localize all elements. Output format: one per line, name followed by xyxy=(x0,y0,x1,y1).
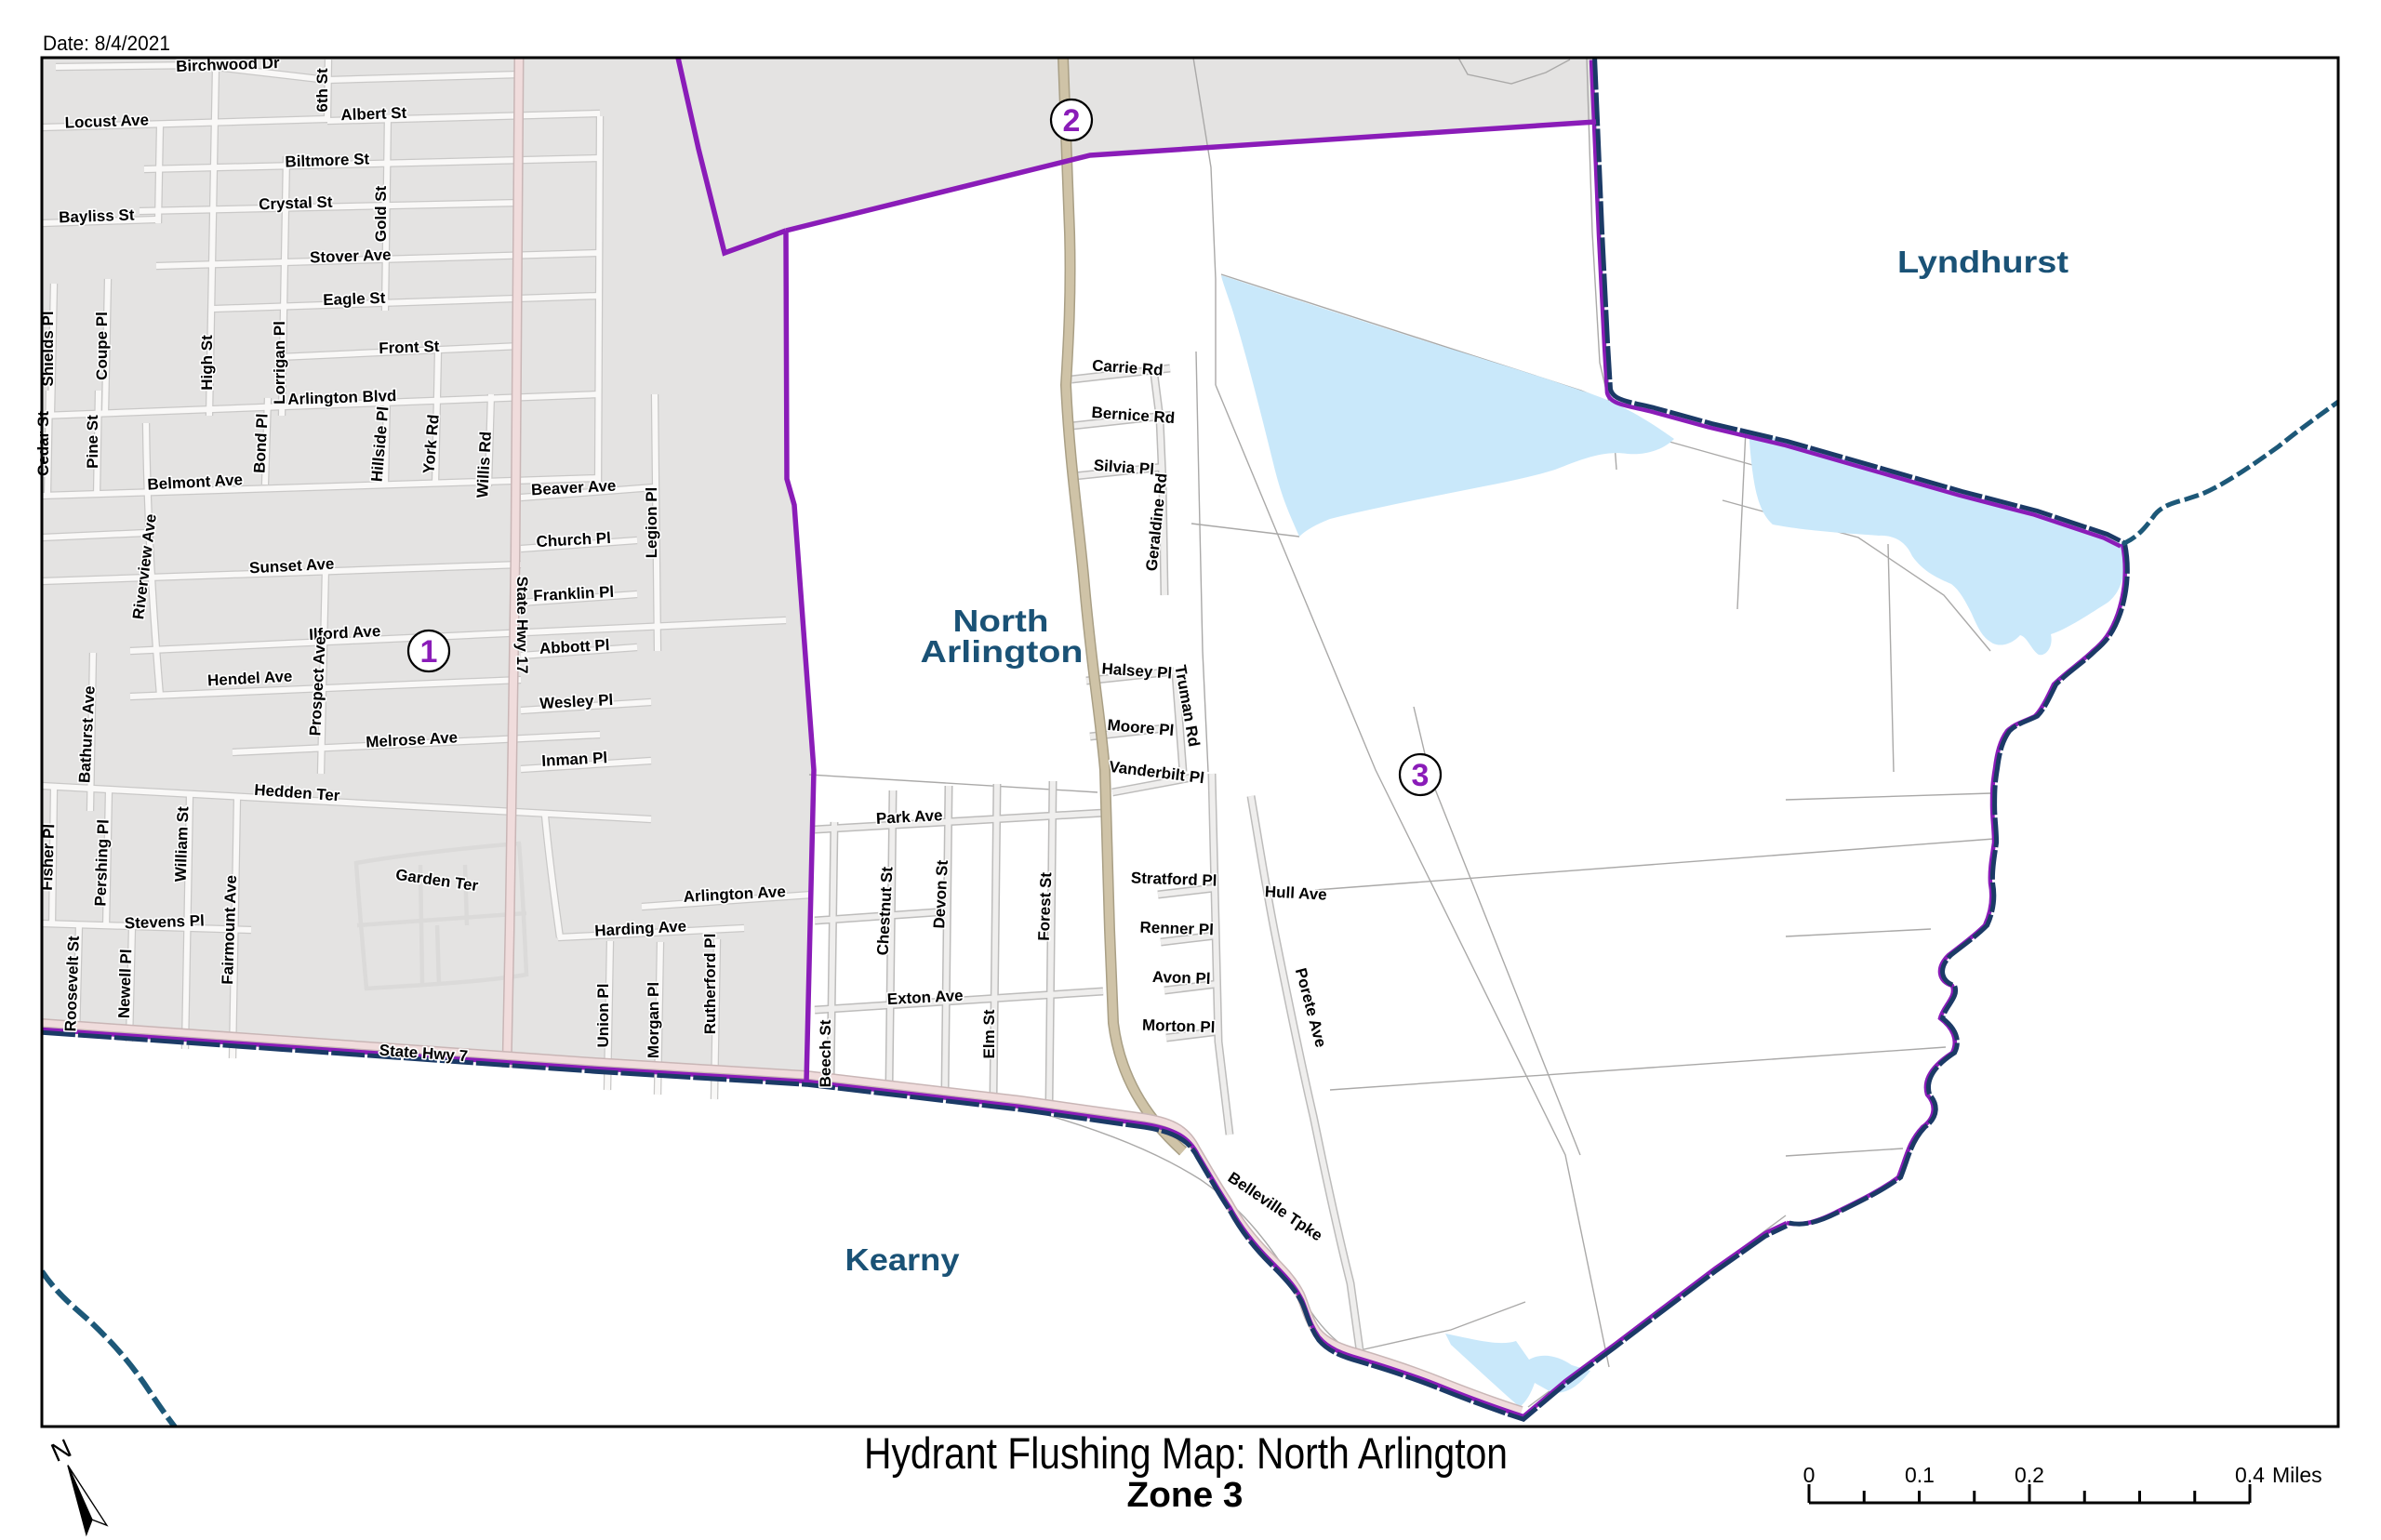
svg-text:Union Pl: Union Pl xyxy=(594,984,612,1048)
svg-text:State Hwy 17: State Hwy 17 xyxy=(513,577,531,674)
svg-text:Pine St: Pine St xyxy=(84,415,101,469)
svg-text:2: 2 xyxy=(1063,103,1081,139)
svg-text:Abbott Pl: Abbott Pl xyxy=(539,636,609,657)
svg-text:0: 0 xyxy=(1803,1463,1816,1487)
svg-text:Gold St: Gold St xyxy=(372,185,390,242)
svg-text:Legion Pl: Legion Pl xyxy=(643,487,660,559)
svg-text:Stover Ave: Stover Ave xyxy=(310,246,392,266)
svg-text:Lyndhurst: Lyndhurst xyxy=(1897,245,2068,279)
svg-text:Arlington: Arlington xyxy=(921,634,1084,669)
svg-text:0.1: 0.1 xyxy=(1905,1463,1935,1487)
svg-text:Hull Ave: Hull Ave xyxy=(1264,883,1327,903)
svg-text:Rutherford Pl: Rutherford Pl xyxy=(701,934,719,1035)
svg-text:Willis Rd: Willis Rd xyxy=(473,431,495,498)
svg-text:North: North xyxy=(953,604,1049,638)
svg-text:3: 3 xyxy=(1412,758,1430,793)
svg-text:Albert St: Albert St xyxy=(340,104,407,124)
svg-text:Front St: Front St xyxy=(379,338,440,357)
svg-text:Locust Ave: Locust Ave xyxy=(64,111,149,131)
svg-text:Stratford Pl: Stratford Pl xyxy=(1131,869,1217,889)
svg-text:Stevens Pl: Stevens Pl xyxy=(125,912,206,933)
svg-text:Devon St: Devon St xyxy=(930,859,951,929)
svg-text:Bayliss St: Bayliss St xyxy=(59,206,135,227)
svg-text:Crystal St: Crystal St xyxy=(259,193,333,214)
svg-text:Hydrant Flushing Map: North Ar: Hydrant Flushing Map: North Arlington xyxy=(864,1428,1508,1478)
svg-text:Zone 3: Zone 3 xyxy=(1127,1476,1244,1515)
svg-text:Inman Pl: Inman Pl xyxy=(541,749,608,770)
svg-text:Forest St: Forest St xyxy=(1035,871,1056,941)
svg-text:Kearny: Kearny xyxy=(845,1242,961,1277)
svg-text:Miles: Miles xyxy=(2272,1463,2322,1487)
svg-text:Renner Pl: Renner Pl xyxy=(1139,919,1214,939)
svg-text:Morgan Pl: Morgan Pl xyxy=(645,982,662,1058)
svg-text:Date: 8/4/2021: Date: 8/4/2021 xyxy=(43,32,170,55)
svg-text:Eagle St: Eagle St xyxy=(323,289,386,309)
svg-text:Roosevelt St: Roosevelt St xyxy=(61,936,83,1032)
svg-text:6th St: 6th St xyxy=(313,68,331,113)
svg-text:Park Ave: Park Ave xyxy=(876,806,943,828)
svg-text:Biltmore St: Biltmore St xyxy=(285,150,370,170)
svg-text:Elm St: Elm St xyxy=(980,1009,998,1058)
svg-text:Morton Pl: Morton Pl xyxy=(1142,1016,1216,1037)
svg-text:Avon Pl: Avon Pl xyxy=(1152,968,1211,988)
svg-text:Bond Pl: Bond Pl xyxy=(250,413,271,473)
svg-text:1: 1 xyxy=(420,634,438,670)
svg-text:0.2: 0.2 xyxy=(2015,1463,2044,1487)
svg-text:Coupe Pl: Coupe Pl xyxy=(93,312,111,380)
svg-text:Lorrigan Pl: Lorrigan Pl xyxy=(271,321,288,405)
svg-text:Pershing Pl: Pershing Pl xyxy=(91,819,112,907)
svg-text:Newell Pl: Newell Pl xyxy=(115,949,136,1018)
svg-text:0.4: 0.4 xyxy=(2235,1463,2265,1487)
svg-text:Beech St: Beech St xyxy=(817,1019,834,1087)
svg-text:William St: William St xyxy=(172,806,193,883)
svg-text:High St: High St xyxy=(198,335,216,391)
